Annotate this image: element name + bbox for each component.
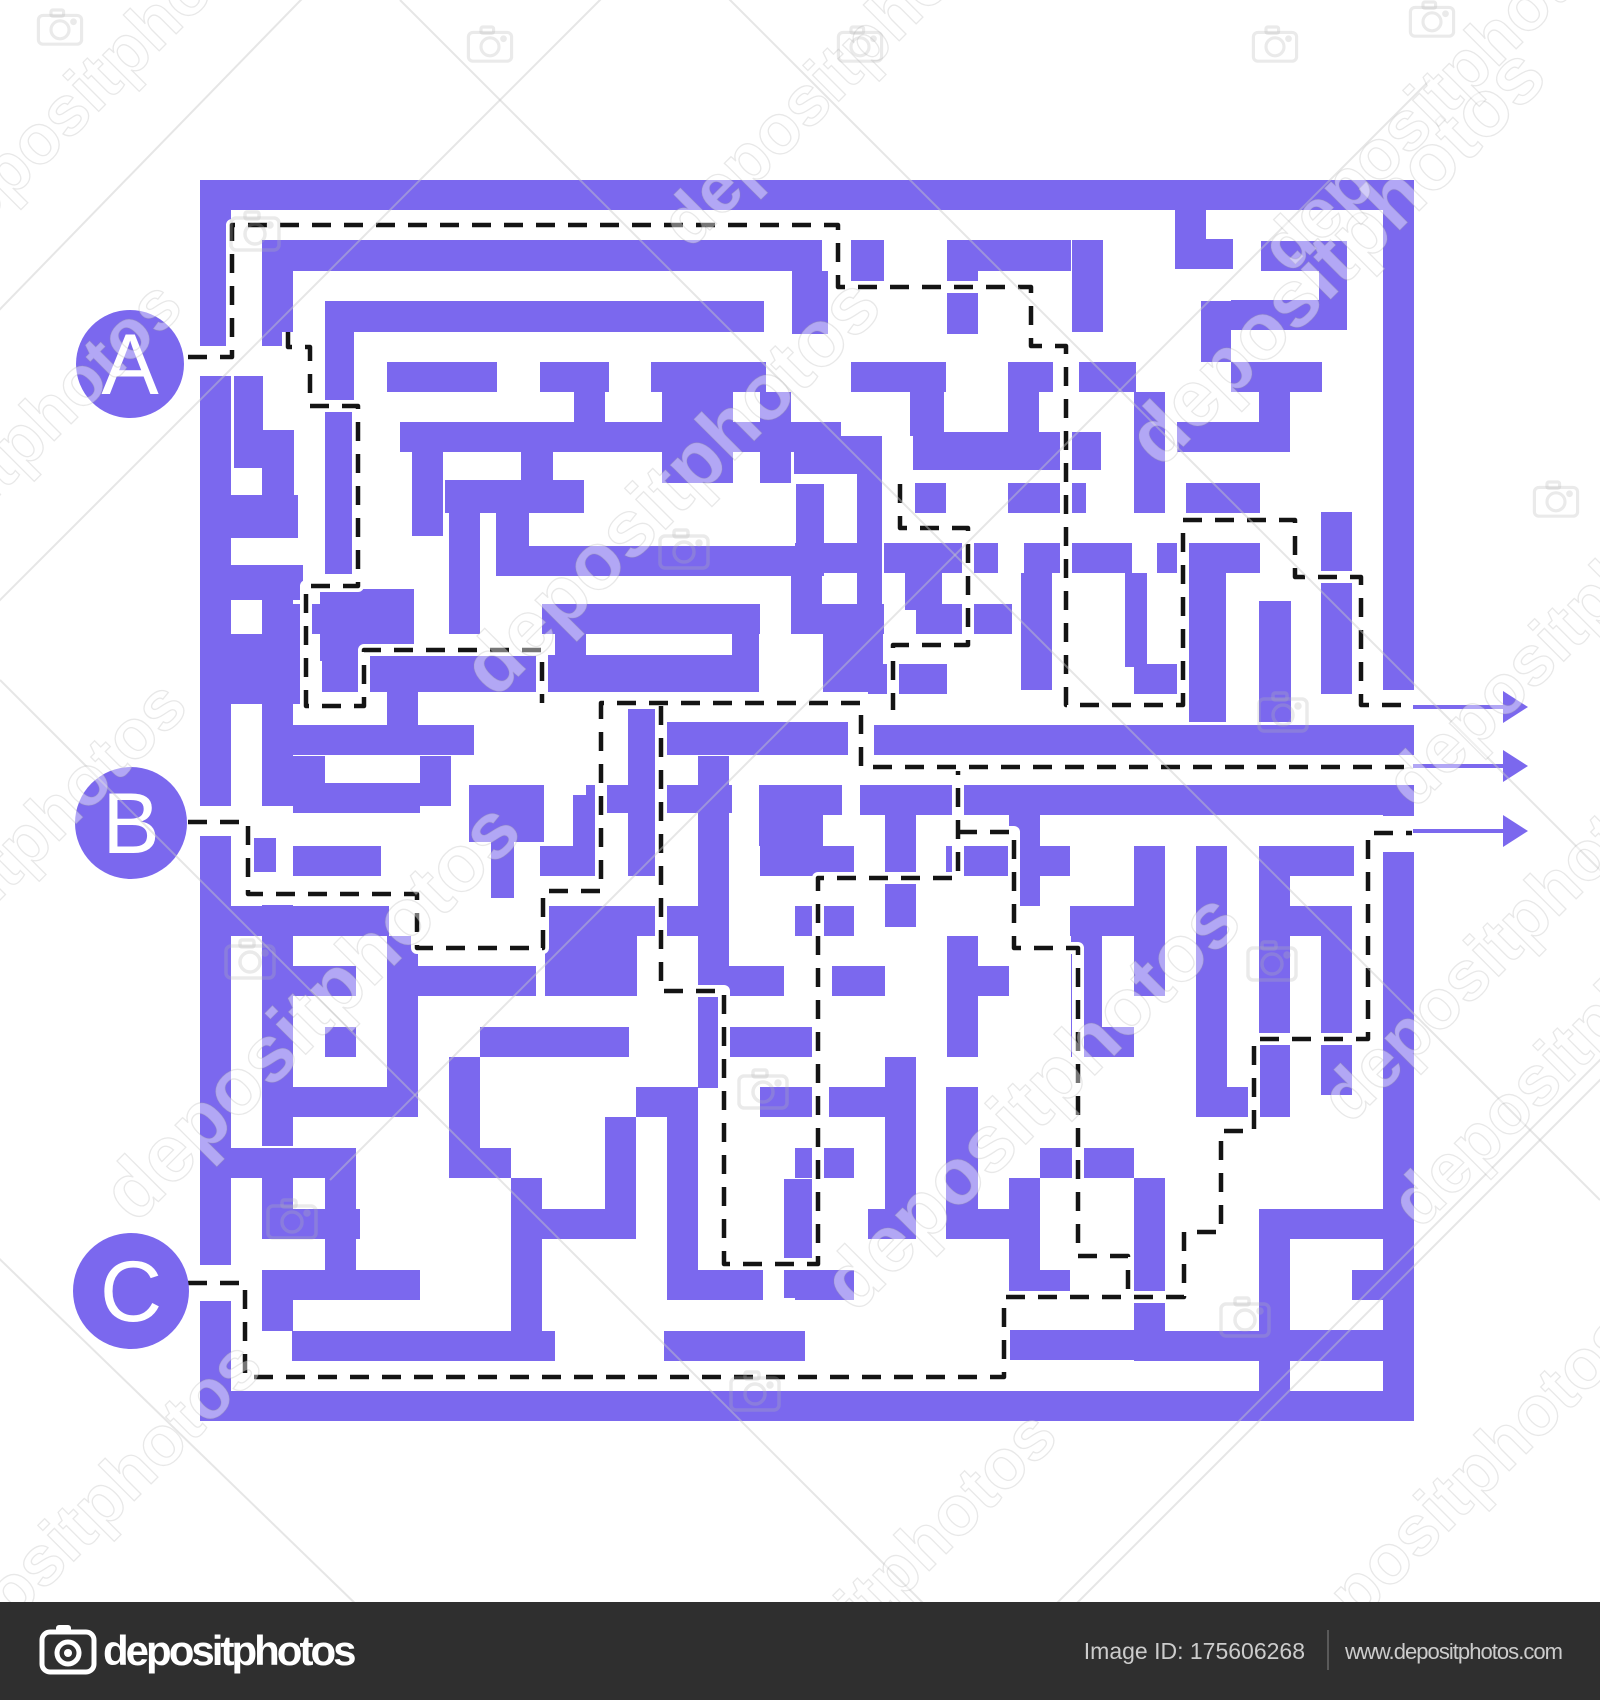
svg-text:depositphotos: depositphotos <box>103 1627 355 1674</box>
svg-text:C: C <box>100 1244 162 1340</box>
svg-text:www.depositphotos.com: www.depositphotos.com <box>1344 1639 1563 1664</box>
svg-text:Image ID: 175606268: Image ID: 175606268 <box>1084 1638 1305 1664</box>
